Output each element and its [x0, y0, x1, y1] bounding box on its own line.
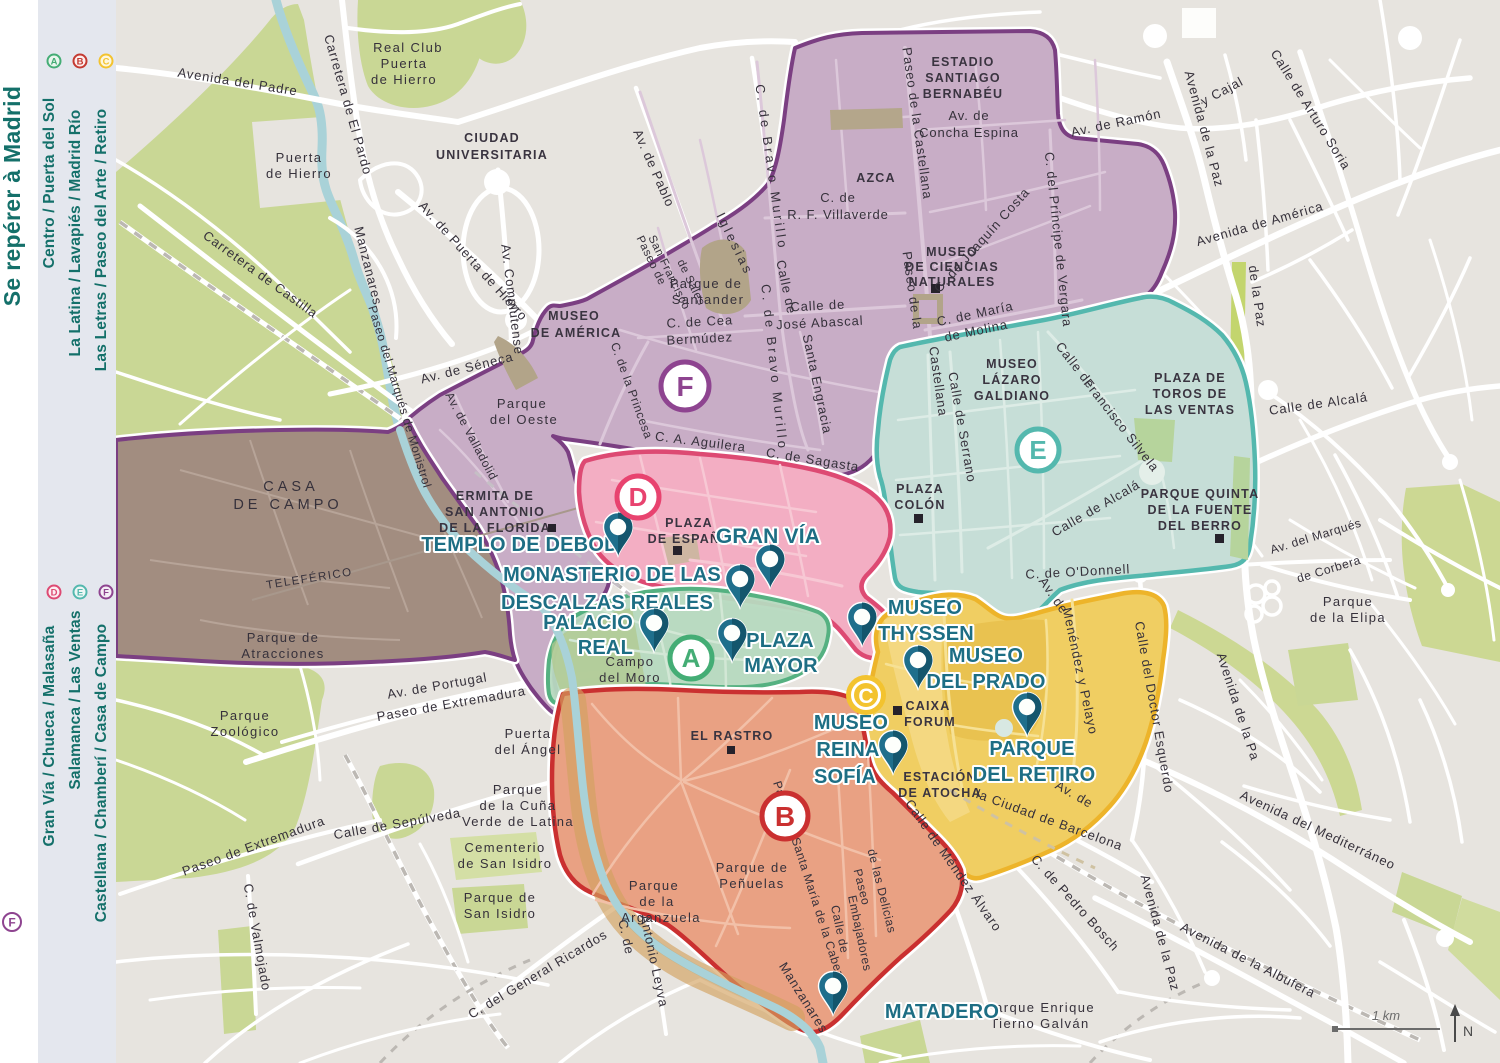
- svg-text:THYSSEN: THYSSEN: [878, 623, 974, 645]
- svg-text:SAN ANTONIO: SAN ANTONIO: [445, 505, 545, 519]
- svg-text:Peñuelas: Peñuelas: [719, 876, 784, 891]
- svg-text:MUSEO: MUSEO: [548, 309, 600, 323]
- svg-text:E: E: [77, 588, 83, 599]
- svg-text:SOFÍA: SOFÍA: [814, 765, 876, 788]
- svg-text:D: D: [51, 588, 58, 599]
- svg-text:del Ángel: del Ángel: [495, 742, 562, 757]
- svg-text:CAIXA: CAIXA: [906, 699, 951, 713]
- svg-text:TOROS DE: TOROS DE: [1153, 387, 1228, 401]
- svg-text:C. de: C. de: [820, 190, 856, 205]
- svg-text:ESTADIO: ESTADIO: [931, 55, 994, 69]
- svg-text:San Isidro: San Isidro: [464, 906, 537, 921]
- svg-text:F: F: [8, 916, 15, 930]
- svg-text:Real Club: Real Club: [373, 40, 443, 55]
- svg-text:Av. de: Av. de: [948, 108, 989, 123]
- svg-text:Cementerio: Cementerio: [464, 840, 545, 855]
- svg-text:PALACIO: PALACIO: [543, 612, 633, 634]
- svg-text:Se repérer à Madrid: Se repérer à Madrid: [0, 86, 25, 306]
- svg-text:LAS VENTAS: LAS VENTAS: [1145, 403, 1235, 417]
- svg-text:CASA: CASA: [263, 479, 319, 495]
- svg-text:de la Elipa: de la Elipa: [1310, 610, 1386, 625]
- svg-text:A: A: [51, 57, 58, 68]
- svg-text:MUSEO: MUSEO: [814, 712, 888, 734]
- svg-text:Parque: Parque: [220, 708, 270, 723]
- svg-text:Arganzuela: Arganzuela: [621, 910, 701, 925]
- svg-text:del Oeste: del Oeste: [490, 412, 558, 427]
- svg-text:PLAZA: PLAZA: [896, 482, 944, 496]
- svg-text:de la Cuña: de la Cuña: [480, 798, 557, 813]
- svg-text:MONASTERIO DE LAS: MONASTERIO DE LAS: [503, 564, 721, 586]
- svg-text:DEL RETIRO: DEL RETIRO: [973, 764, 1096, 786]
- svg-text:TEMPLO DE DEBOD: TEMPLO DE DEBOD: [421, 534, 618, 556]
- svg-text:ESTACIÓN: ESTACIÓN: [903, 769, 976, 784]
- svg-text:Puerta: Puerta: [505, 726, 552, 741]
- svg-text:PLAZA DE: PLAZA DE: [1154, 371, 1226, 385]
- svg-text:REAL: REAL: [578, 637, 633, 659]
- svg-text:SANTIAGO: SANTIAGO: [925, 71, 1001, 85]
- svg-text:D: D: [629, 482, 648, 512]
- svg-text:Las Letras / Paseo del Arte /: Las Letras / Paseo del Arte / Retiro: [93, 109, 110, 371]
- svg-text:DE AMÉRICA: DE AMÉRICA: [531, 325, 622, 340]
- svg-text:B: B: [775, 801, 795, 832]
- svg-text:Atracciones: Atracciones: [241, 646, 324, 661]
- svg-text:La Latina / Lavapiés / Madrid: La Latina / Lavapiés / Madrid Río: [67, 110, 84, 357]
- svg-text:del Moro: del Moro: [599, 670, 661, 685]
- svg-text:de Hierro: de Hierro: [266, 166, 332, 181]
- svg-text:Concha Espina: Concha Espina: [919, 125, 1019, 140]
- svg-text:PLAZA: PLAZA: [665, 516, 713, 530]
- svg-text:FORUM: FORUM: [904, 715, 956, 729]
- svg-text:F: F: [676, 371, 693, 402]
- svg-text:REINA: REINA: [816, 739, 879, 761]
- svg-text:Salamanca / Las Ventas: Salamanca / Las Ventas: [67, 610, 84, 789]
- svg-text:Parque de: Parque de: [464, 890, 537, 905]
- svg-text:1 km: 1 km: [1372, 1008, 1400, 1023]
- svg-text:AZCA: AZCA: [856, 171, 896, 185]
- svg-text:PARQUE QUINTA: PARQUE QUINTA: [1141, 487, 1260, 501]
- svg-text:E: E: [1029, 435, 1046, 465]
- svg-text:N: N: [1463, 1023, 1473, 1039]
- svg-text:DE LA FLORIDA: DE LA FLORIDA: [439, 521, 551, 535]
- svg-text:Puerta: Puerta: [381, 56, 428, 71]
- svg-text:DEL BERRO: DEL BERRO: [1158, 519, 1242, 533]
- svg-text:COLÓN: COLÓN: [894, 497, 945, 512]
- svg-text:PLAZA: PLAZA: [746, 630, 814, 652]
- svg-text:Castellana / Chamberí / Casa d: Castellana / Chamberí / Casa de Campo: [93, 624, 110, 923]
- svg-text:de la: de la: [639, 894, 674, 909]
- svg-text:MAYOR: MAYOR: [744, 655, 818, 677]
- svg-text:C: C: [103, 57, 110, 68]
- svg-text:Puerta: Puerta: [276, 150, 323, 165]
- svg-text:Parque: Parque: [497, 396, 547, 411]
- svg-text:B: B: [77, 57, 84, 68]
- svg-text:de San Isidro: de San Isidro: [458, 856, 553, 871]
- svg-text:Verde de Latina: Verde de Latina: [462, 814, 574, 829]
- svg-text:MUSEO: MUSEO: [888, 597, 962, 619]
- svg-text:MUSEO: MUSEO: [949, 645, 1023, 667]
- svg-text:DEL PRADO: DEL PRADO: [926, 671, 1045, 693]
- svg-text:A: A: [682, 643, 701, 673]
- svg-text:R. F. Villaverde: R. F. Villaverde: [787, 207, 889, 222]
- svg-text:Parque: Parque: [629, 878, 679, 893]
- svg-text:BERNABÉU: BERNABÉU: [923, 86, 1003, 101]
- svg-text:Tierno Galván: Tierno Galván: [990, 1016, 1089, 1031]
- svg-text:CIUDAD: CIUDAD: [464, 131, 520, 145]
- svg-text:Gran Vía / Chueca / Malasaña: Gran Vía / Chueca / Malasaña: [41, 625, 58, 846]
- svg-text:MUSEO: MUSEO: [986, 357, 1038, 371]
- svg-text:Parque de: Parque de: [247, 630, 320, 645]
- svg-text:Parque de: Parque de: [716, 860, 789, 875]
- svg-text:Parque Enrique: Parque Enrique: [985, 1000, 1095, 1015]
- svg-text:UNIVERSITARIA: UNIVERSITARIA: [436, 148, 548, 162]
- svg-text:Zoológico: Zoológico: [211, 724, 280, 739]
- svg-text:ERMITA DE: ERMITA DE: [456, 489, 534, 503]
- svg-text:DE ATOCHA: DE ATOCHA: [898, 786, 982, 800]
- svg-text:DESCALZAS REALES: DESCALZAS REALES: [501, 592, 713, 614]
- svg-text:DE LA FUENTE: DE LA FUENTE: [1148, 503, 1253, 517]
- svg-text:Parque: Parque: [1323, 594, 1373, 609]
- svg-text:DE CAMPO: DE CAMPO: [233, 497, 342, 513]
- svg-text:LÁZARO: LÁZARO: [982, 372, 1041, 387]
- svg-text:MATADERO: MATADERO: [885, 1001, 999, 1023]
- svg-text:Parque: Parque: [493, 782, 543, 797]
- svg-text:Centro / Puerta del Sol: Centro / Puerta del Sol: [41, 98, 58, 269]
- svg-text:F: F: [103, 588, 109, 599]
- svg-text:EL RASTRO: EL RASTRO: [691, 729, 774, 743]
- svg-text:GALDIANO: GALDIANO: [974, 389, 1050, 403]
- svg-text:de Hierro: de Hierro: [371, 72, 437, 87]
- svg-text:PARQUE: PARQUE: [989, 738, 1074, 760]
- svg-text:C: C: [858, 685, 873, 708]
